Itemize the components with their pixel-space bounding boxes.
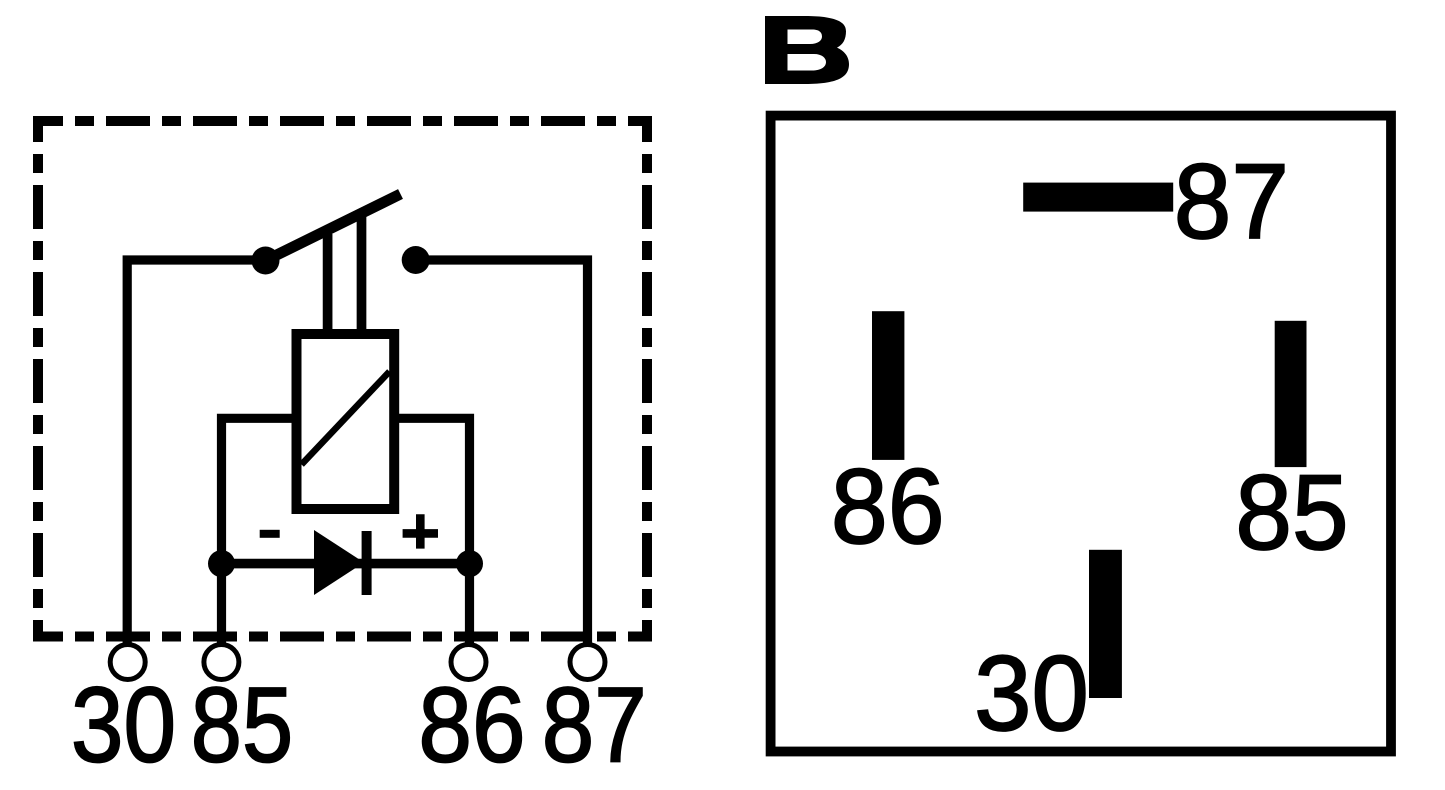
svg-text:87: 87 [542, 665, 647, 785]
svg-text:86: 86 [831, 446, 945, 566]
svg-text:86: 86 [418, 665, 525, 785]
svg-text:87: 87 [1174, 141, 1289, 261]
svg-text:85: 85 [191, 665, 293, 785]
svg-text:30: 30 [974, 633, 1089, 753]
svg-text:30: 30 [71, 665, 176, 785]
svg-text:85: 85 [1235, 452, 1348, 572]
